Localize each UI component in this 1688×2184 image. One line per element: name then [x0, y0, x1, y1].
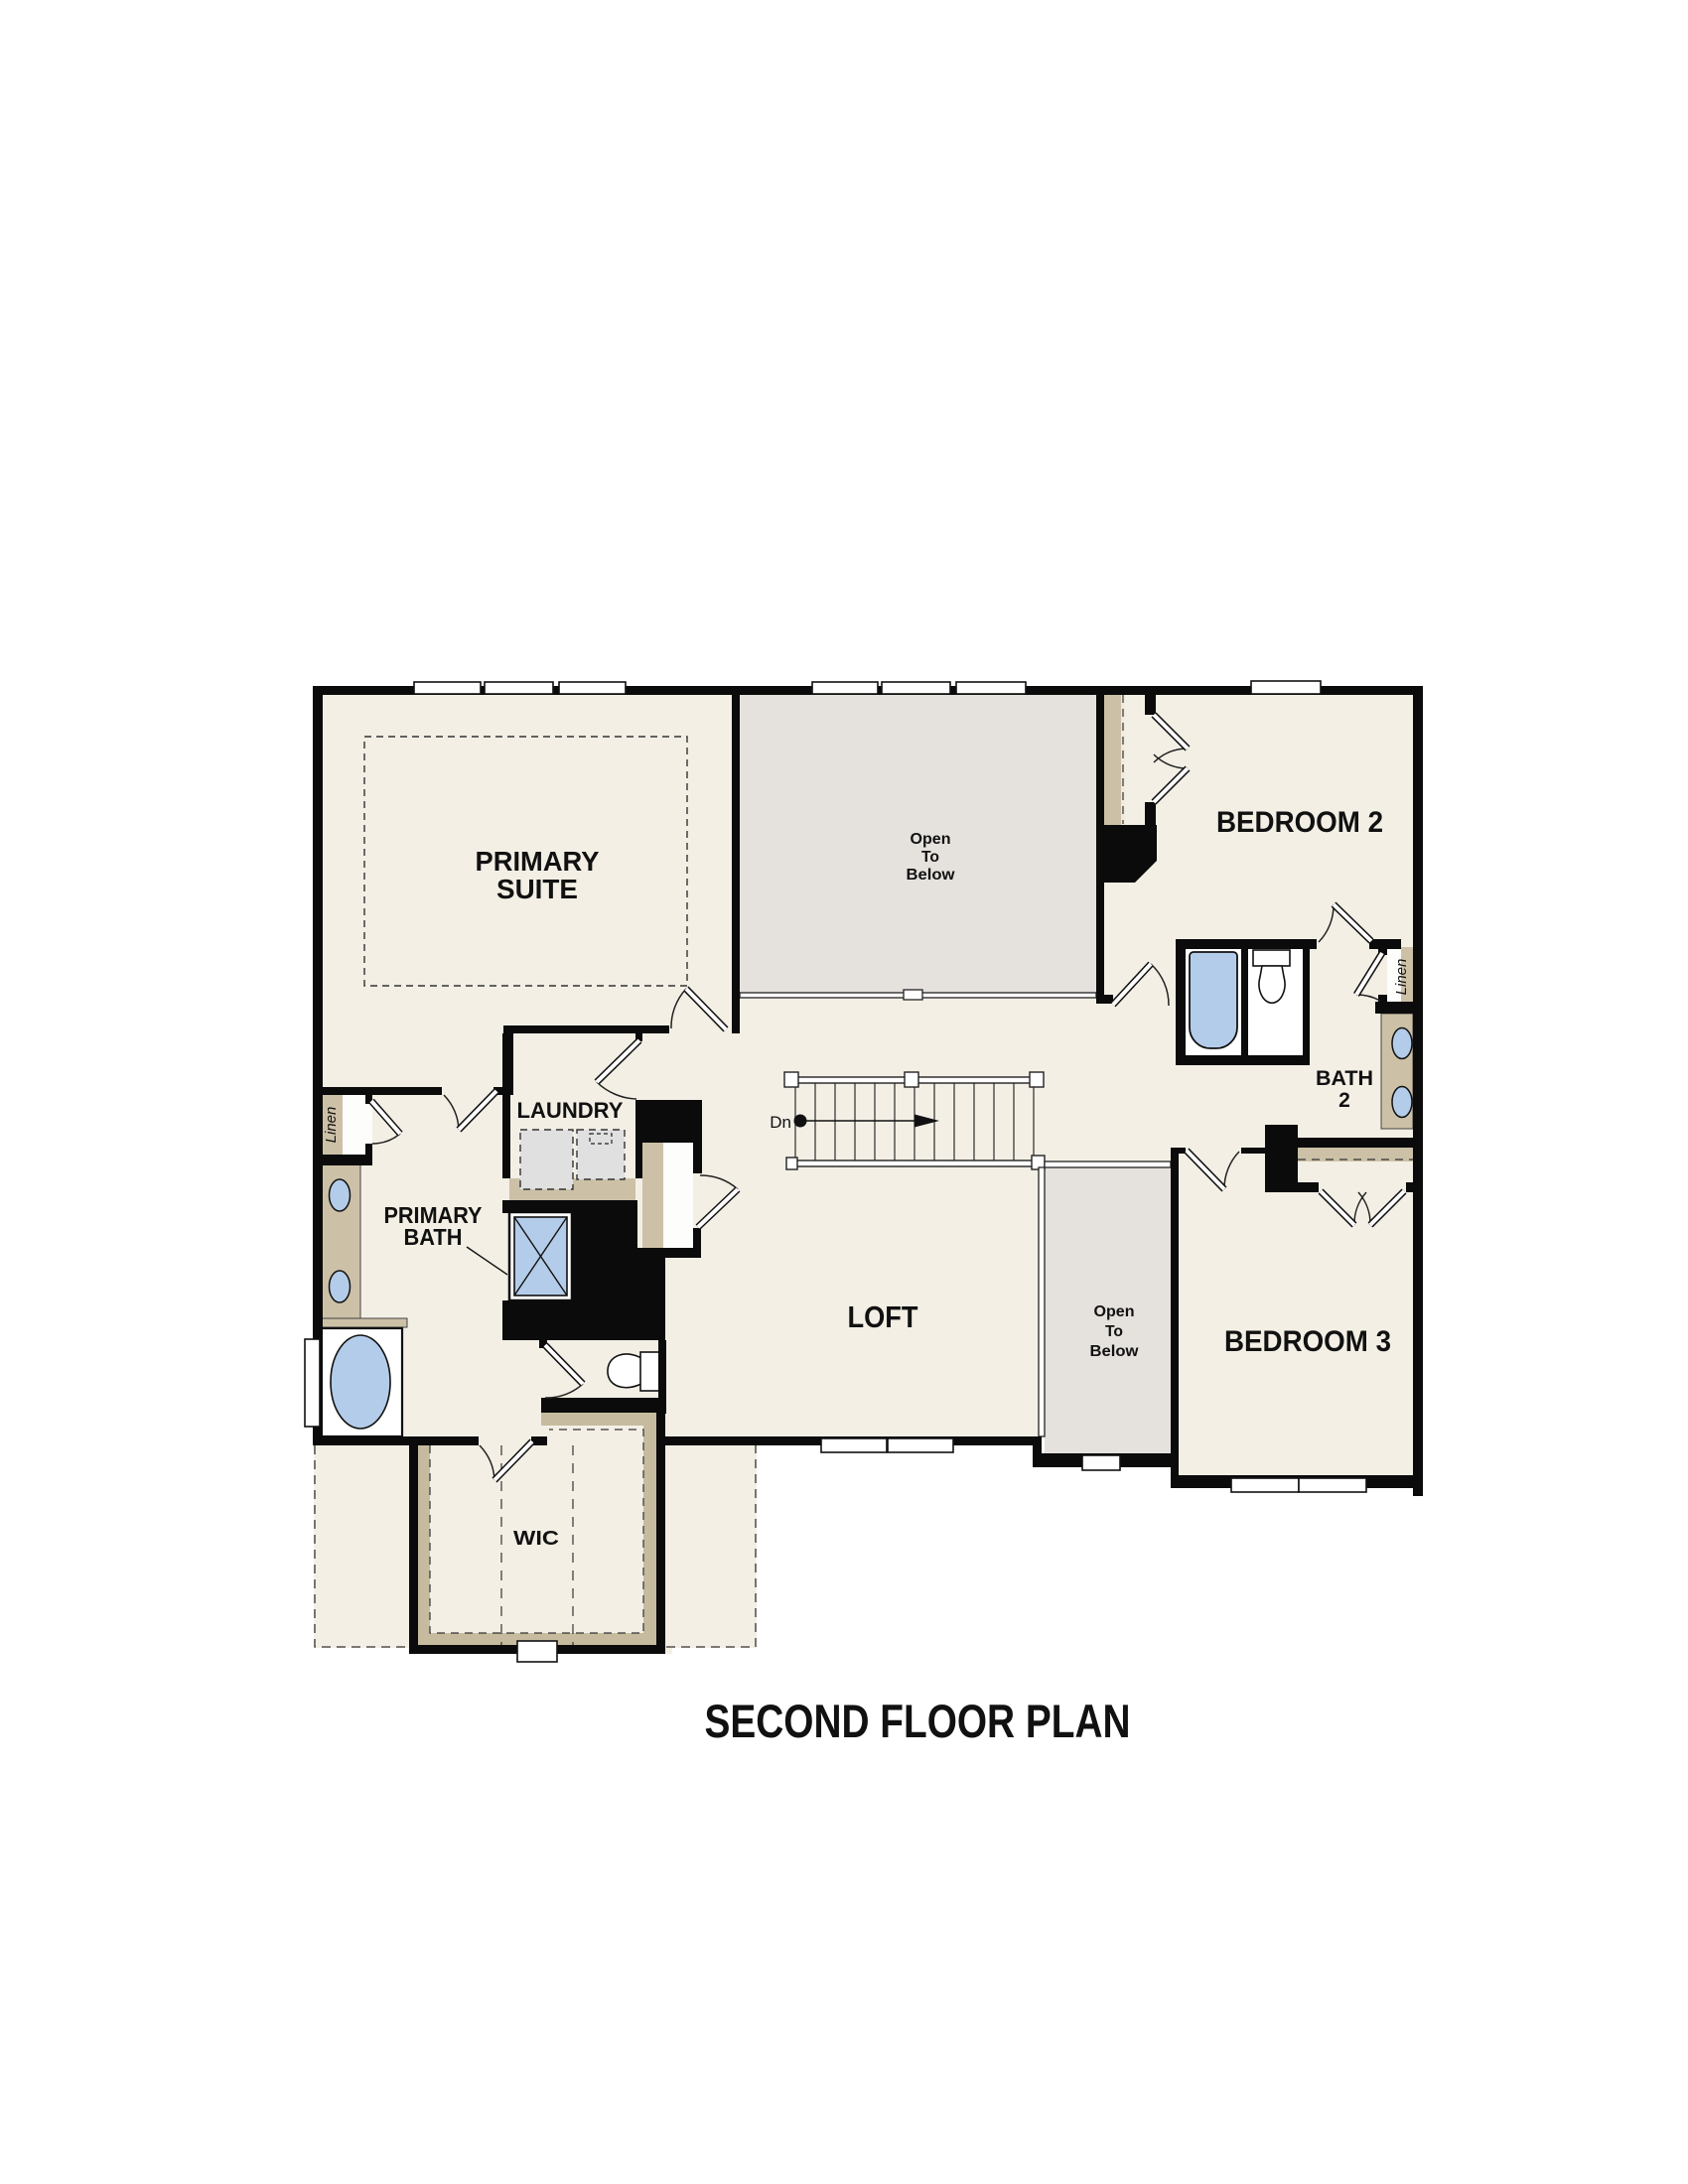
- svg-text:2: 2: [1338, 1089, 1350, 1112]
- svg-text:LAUNDRY: LAUNDRY: [517, 1098, 624, 1123]
- svg-text:SUITE: SUITE: [496, 874, 578, 904]
- svg-text:Below: Below: [907, 867, 956, 884]
- svg-text:LOFT: LOFT: [848, 1299, 918, 1334]
- svg-text:Dn: Dn: [770, 1113, 791, 1132]
- svg-text:BEDROOM 3: BEDROOM 3: [1224, 1325, 1391, 1358]
- svg-text:To: To: [921, 849, 939, 866]
- svg-text:Linen: Linen: [1393, 959, 1410, 996]
- svg-text:BATH: BATH: [404, 1224, 463, 1250]
- svg-text:To: To: [1105, 1323, 1123, 1340]
- svg-text:Linen: Linen: [323, 1107, 340, 1144]
- svg-text:Open: Open: [911, 831, 951, 848]
- svg-text:SECOND FLOOR PLAN: SECOND FLOOR PLAN: [705, 1695, 1131, 1747]
- svg-text:BEDROOM 2: BEDROOM 2: [1216, 806, 1383, 839]
- svg-text:WIC: WIC: [513, 1528, 559, 1550]
- svg-text:Open: Open: [1094, 1303, 1135, 1320]
- svg-text:Below: Below: [1090, 1343, 1140, 1360]
- svg-text:PRIMARY: PRIMARY: [476, 846, 600, 877]
- svg-text:BATH: BATH: [1316, 1067, 1373, 1090]
